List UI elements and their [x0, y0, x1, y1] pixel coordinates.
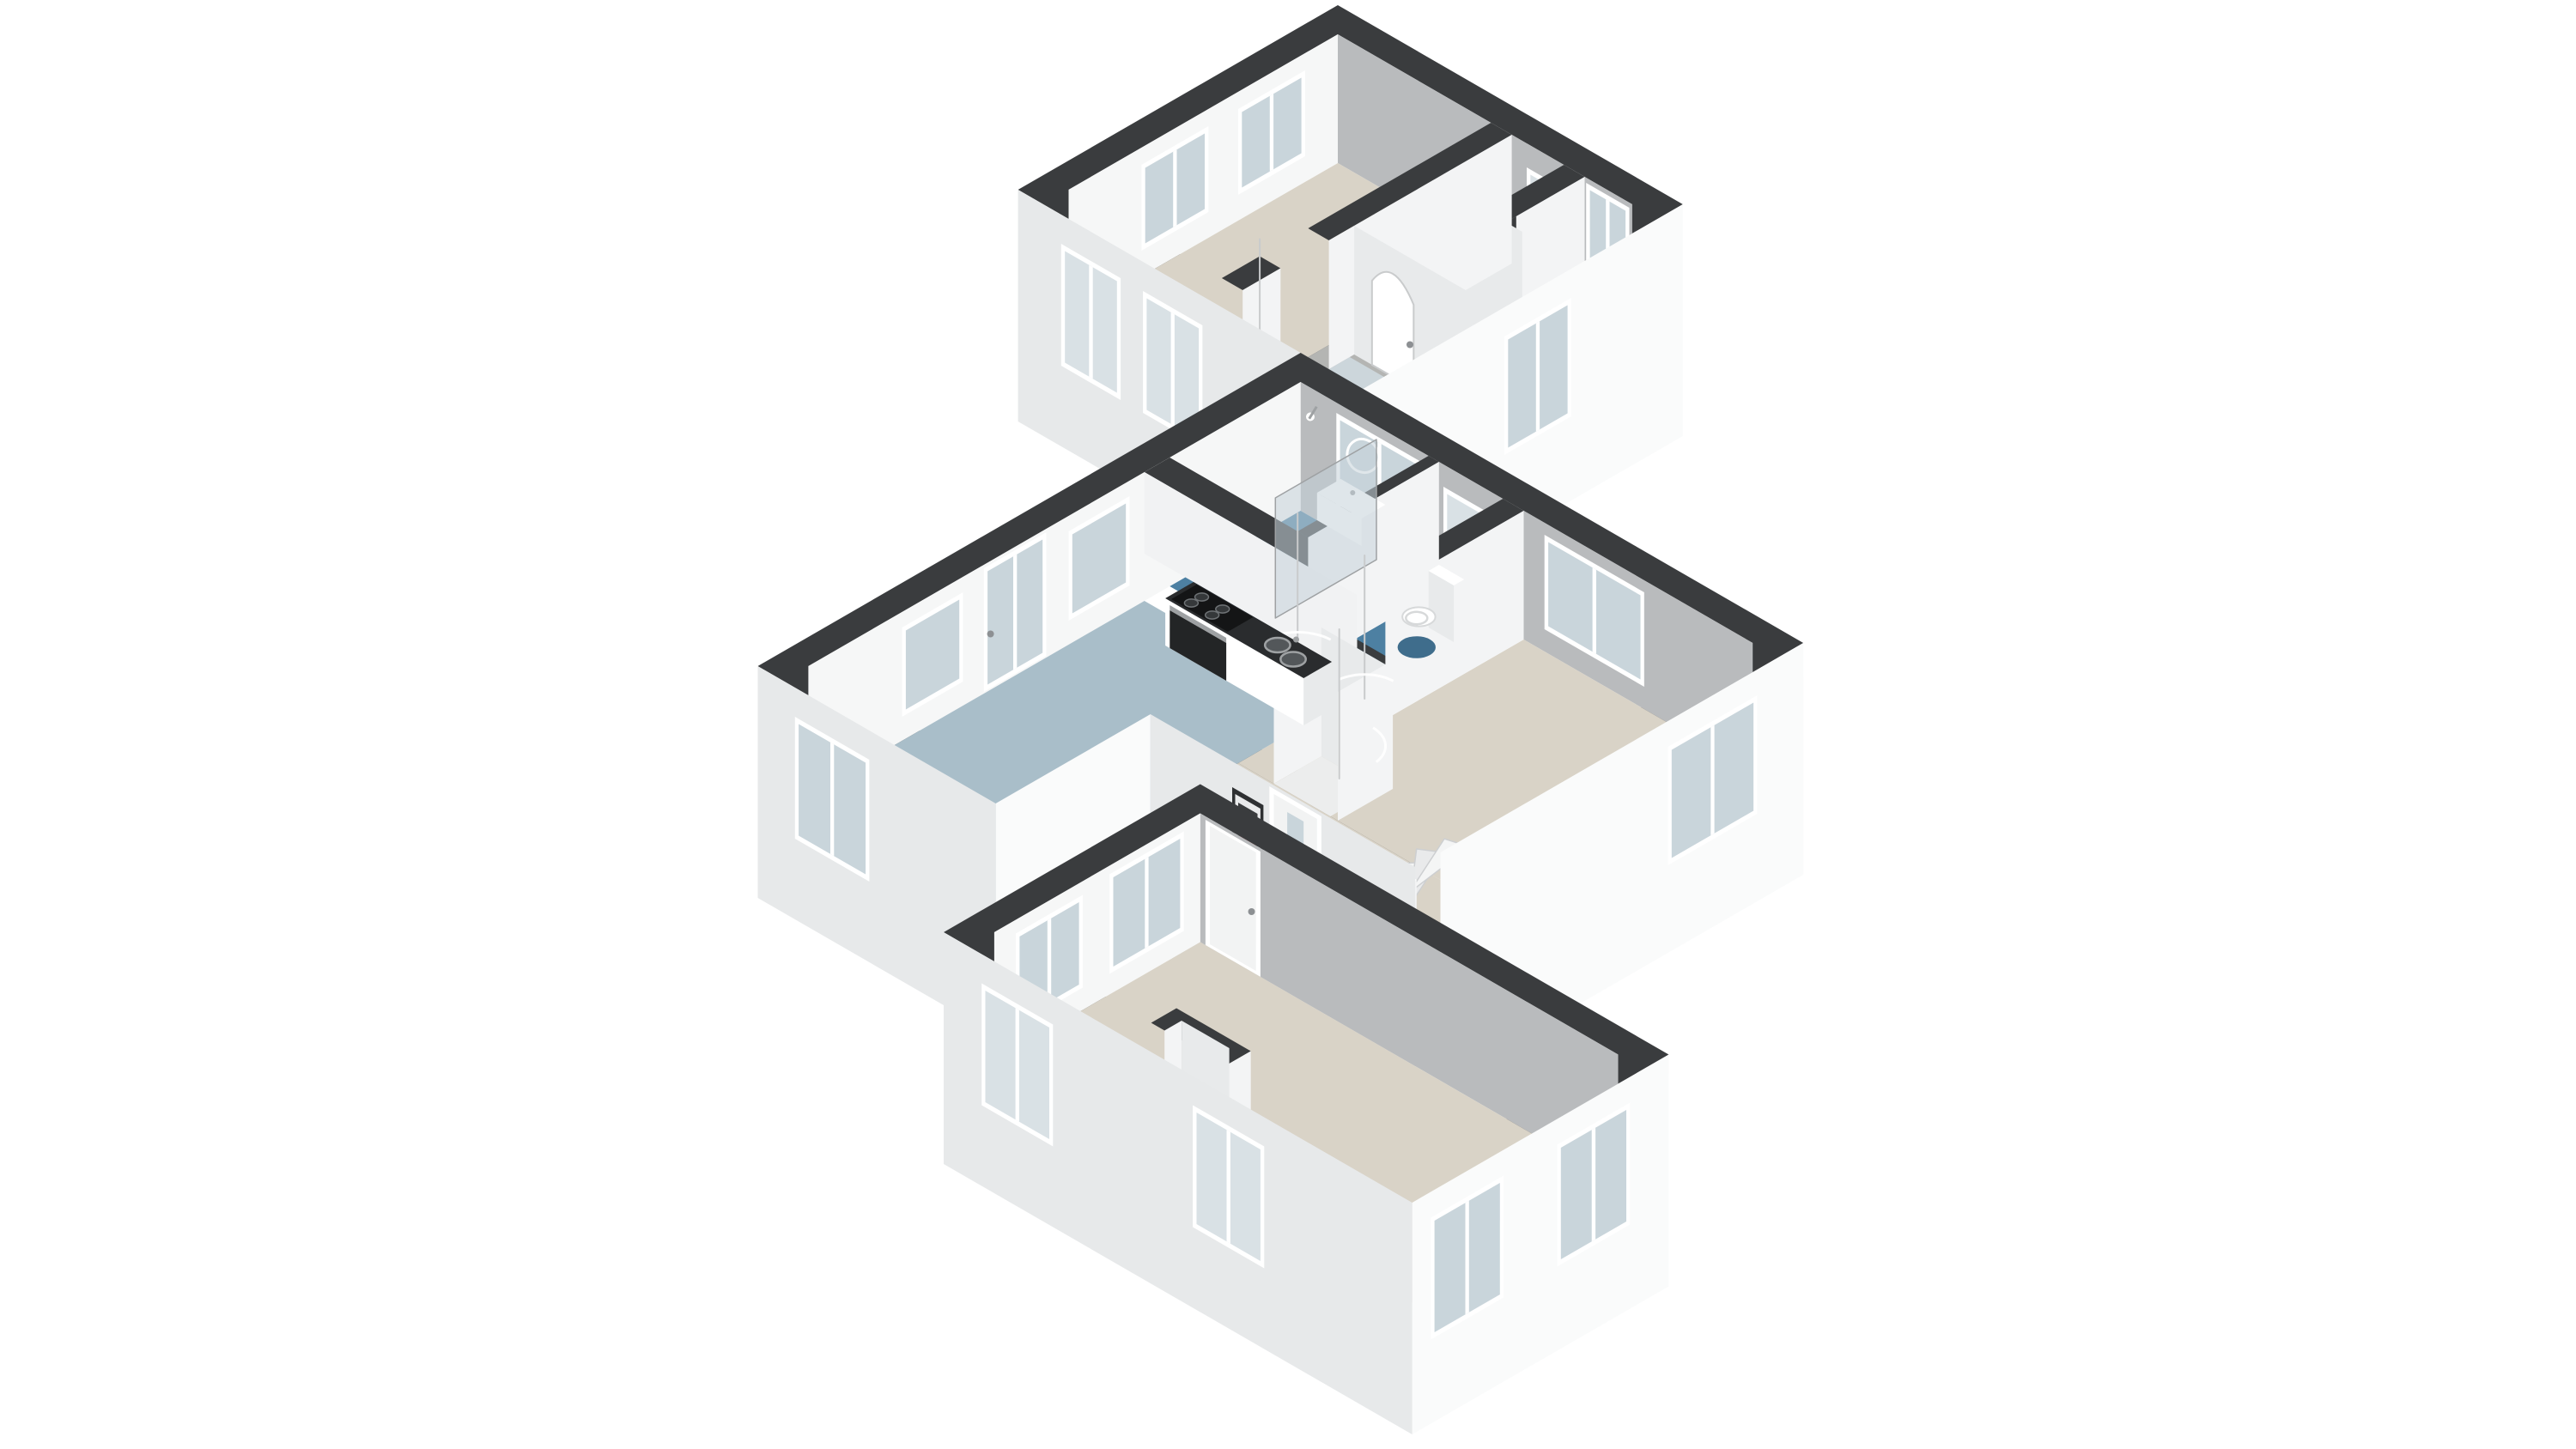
living-sw-outer-window-1 — [1016, 1008, 1019, 1122]
kitchen-sink-basin-1 — [1265, 638, 1290, 652]
living-window-1 — [1145, 857, 1148, 949]
kitchen-sink-basin-2 — [1280, 652, 1305, 667]
living-window-2 — [1048, 919, 1051, 1003]
kitchen-glazed-door — [1013, 555, 1017, 670]
kitchen-faucet — [1293, 637, 1299, 643]
bedroom1-window-1 — [1270, 94, 1273, 172]
stove-burner-1 — [1195, 593, 1209, 601]
stove-burner-4 — [1206, 611, 1219, 619]
floorplan-svg — [0, 0, 2576, 1449]
stove-burner-3 — [1216, 605, 1230, 613]
arched-door-handle — [1406, 342, 1413, 349]
living-sw-outer-window-2 — [1227, 1130, 1230, 1244]
toilet-shadow — [1398, 636, 1436, 658]
bedroom2-se-outer-window — [1710, 725, 1714, 836]
bedroom1-window-2 — [1173, 149, 1176, 227]
top-se-outer-window — [1536, 321, 1540, 432]
stove-burner-2 — [1184, 599, 1198, 607]
kitchen-door-handle — [987, 631, 994, 638]
living-se-outer-window-2 — [1466, 1201, 1469, 1315]
living-se-outer-window-1 — [1592, 1128, 1595, 1242]
bedroom1-sw-outer-window-1 — [1089, 265, 1092, 379]
bedroom2-window — [1593, 567, 1596, 654]
kitchen-sw-outer-window — [830, 743, 834, 857]
living-hall-door-handle — [1249, 908, 1255, 915]
floorplan-3d-view — [0, 0, 2576, 1449]
bedroom1-sw-outer-window-2 — [1171, 312, 1175, 427]
